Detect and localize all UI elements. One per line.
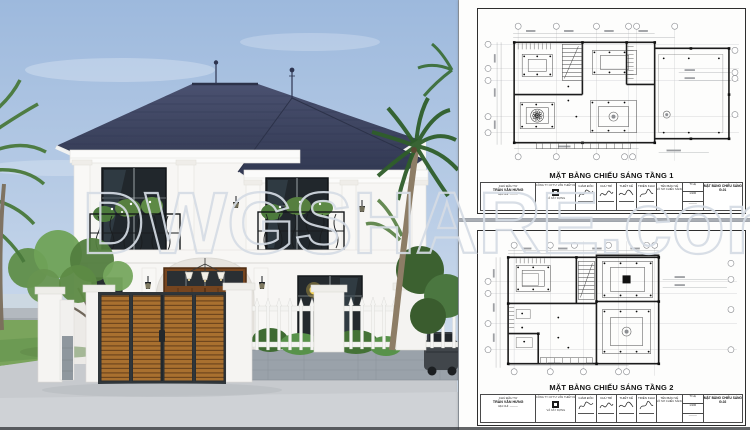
title-block-signature-cell: CHỦ TRÌ [597,395,617,422]
floor-plan-1-drawing [478,9,745,172]
plan-title-floor-1: MẶT BẰNG CHIẾU SÁNG TẦNG 1 [478,172,745,182]
ceiling-spotlights [517,262,651,352]
title-block-scale-cell: TỈ LỆ 1/100 ——— [683,183,704,210]
company-logo-icon [552,189,559,196]
walls [514,42,729,142]
gate-handle [159,330,165,342]
grid-bubbles [485,242,734,374]
title-block-signature-cell: TRIỂN KHAI [637,183,657,210]
batten-hatch [509,258,592,363]
title-block-drawing-name-cell: TÊN BẢN VẼ HỒ SƠ CHIẾU SÁNG [657,183,683,210]
title-block-signature-cell: GIÁM ĐỐC [576,395,596,422]
company-logo-icon [552,401,559,408]
title-block-owner-cell: CHỦ ĐẦU TƯ TRẦN VĂN HƯNG ĐỊA CHỈ: ——— [481,183,536,210]
wooden-gate [98,292,226,384]
title-block-signature-cell: THIẾT KẾ [617,395,637,422]
ceiling-coffers [516,261,653,353]
signature-scribble [578,188,594,200]
title-block-sheet-code-cell: MẶT BẰNG CHIẾU SÁNG Đ-02 [704,395,742,422]
stair [562,44,582,80]
floor-divider-band [74,250,426,263]
signature-scribble [598,188,614,200]
title-block-company-cell: CÔNG TY CP TƯ VẤN THIẾT KẾ VÀ XÂY DỰNG [536,183,576,210]
signature-scribble [618,188,634,200]
light-fixtures [517,262,651,352]
signature-scribble [638,400,654,412]
thumbnail-image: MẶT BẰNG CHIẾU SÁNG TẦNG 1 CHỦ ĐẦU TƯ TR… [0,0,750,430]
house-render-graphic [0,0,458,430]
title-block-drawing-name-cell: TÊN BẢN VẼ HỒ SƠ CHIẾU SÁNG [657,395,683,422]
signature-scribble [638,188,654,200]
title-block-signature-cell: GIÁM ĐỐC [576,183,596,210]
stair [578,261,594,299]
batten-hatch [518,43,633,148]
title-block-sheet-code-cell: MẶT BẰNG CHIẾU SÁNG Đ-01 [704,183,742,210]
plan-title-floor-2: MẶT BẰNG CHIẾU SÁNG TẦNG 2 [478,384,745,394]
signature-scribble [618,400,634,412]
sheet-floor-1: MẶT BẰNG CHIẾU SÁNG TẦNG 1 CHỦ ĐẦU TƯ TR… [459,0,750,218]
title-block-company-cell: CÔNG TY CP TƯ VẤN THIẾT KẾ VÀ XÂY DỰNG [536,395,576,422]
sheet-floor-2: MẶT BẰNG CHIẾU SÁNG TẦNG 2 CHỦ ĐẦU TƯ TR… [459,222,750,430]
sheet-1-border: MẶT BẰNG CHIẾU SÁNG TẦNG 1 CHỦ ĐẦU TƯ TR… [477,8,746,214]
light-fixtures [521,51,720,133]
signature-scribble [598,400,614,412]
title-block-scale-cell: TỈ LỆ 1/100 ——— [683,395,704,422]
title-block-signature-cell: CHỦ TRÌ [597,183,617,210]
title-block-signature-cell: THIẾT KẾ [617,183,637,210]
ceiling-fan-symbol [531,109,544,122]
title-block-sheet-2: CHỦ ĐẦU TƯ TRẦN VĂN HƯNG ĐỊA CHỈ: ——— CÔ… [480,394,743,423]
title-block-sheet-1: CHỦ ĐẦU TƯ TRẦN VĂN HƯNG ĐỊA CHỈ: ——— CÔ… [480,182,743,211]
signature-scribble [578,400,594,412]
ceiling-coffers [520,50,723,132]
title-block-owner-cell: CHỦ ĐẦU TƯ TRẦN VĂN HƯNG ĐỊA CHỈ: ——— [481,395,536,422]
sheet-2-border: MẶT BẰNG CHIẾU SÁNG TẦNG 2 CHỦ ĐẦU TƯ TR… [477,230,746,426]
house-3d-render [0,0,458,430]
title-block-signature-cell: TRIỂN KHAI [637,395,657,422]
floor-plan-2-drawing [478,231,745,384]
drawing-sheets-panel: MẶT BẰNG CHIẾU SÁNG TẦNG 1 CHỦ ĐẦU TƯ TR… [458,0,750,430]
ceiling-spotlights [521,51,720,133]
